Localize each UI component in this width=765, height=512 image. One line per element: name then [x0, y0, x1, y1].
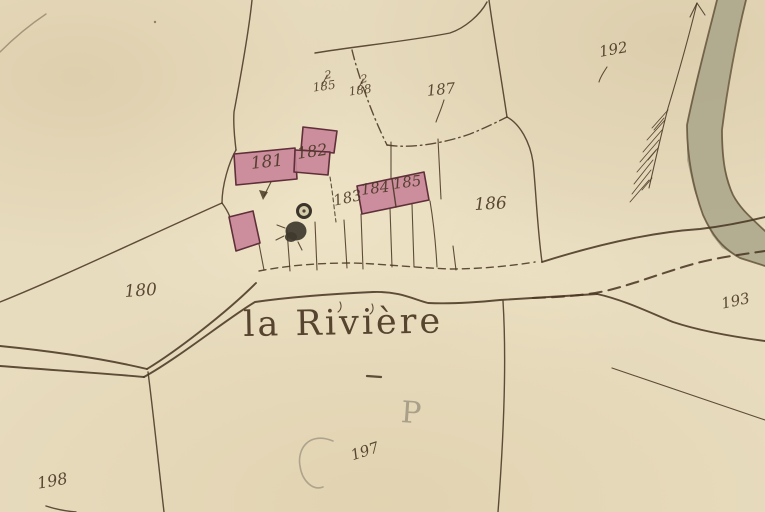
digit-tail-187 [436, 100, 444, 122]
road-lower-left [0, 366, 144, 377]
road-bend-upper [147, 283, 256, 369]
parcel-label-184: 184 [360, 180, 390, 198]
boundary-180-north [0, 203, 222, 302]
road-upper-left [0, 346, 147, 369]
parcel-fraction-left: 2 185 [311, 68, 339, 93]
cadastral-map: 180 181 182 183 184 185 186 187 192 193 … [0, 0, 765, 512]
place-name-label: la Rivière [243, 305, 443, 343]
digit-hook-192 [599, 67, 607, 82]
parcel-label-187: 187 [426, 81, 456, 99]
parcel-label-182: 182 [296, 142, 328, 162]
pencil-loop [300, 438, 333, 488]
faint-line-top-left [0, 14, 46, 52]
street-front-dashed [259, 262, 535, 271]
building-small [229, 211, 260, 251]
parcel-boundaries [0, 0, 765, 512]
pencil-letter-p: P [400, 398, 422, 429]
well-markers [276, 205, 311, 251]
place-name-dash [367, 376, 381, 377]
boundary-corner-arc [46, 506, 76, 512]
parcel-label-181: 181 [250, 153, 284, 173]
boundary-top-vertical [489, 0, 507, 117]
pencil-marks [300, 438, 333, 488]
boundary-bottom-vertical [498, 301, 505, 512]
parcel-pointer-arrow [259, 182, 271, 200]
map-drawing [0, 0, 765, 512]
parcel-label-180: 180 [124, 282, 158, 301]
dashed-track-right [533, 251, 765, 298]
boundary-top-middle [315, 2, 487, 53]
parcel-label-185: 185 [392, 174, 422, 192]
ink-speck [154, 21, 156, 23]
dashdot-boundary-2 [387, 117, 507, 146]
boundary-bottom-left [148, 372, 164, 512]
parcel-label-186: 186 [474, 195, 507, 214]
well-center-dot [302, 209, 305, 212]
paper-crease [612, 368, 765, 420]
boundary-186-west [507, 117, 542, 262]
boundary-top-left [234, 0, 252, 150]
boundary-connector [222, 203, 230, 217]
parcel-fraction-right: 2 188 [347, 72, 375, 97]
roads [0, 217, 765, 377]
